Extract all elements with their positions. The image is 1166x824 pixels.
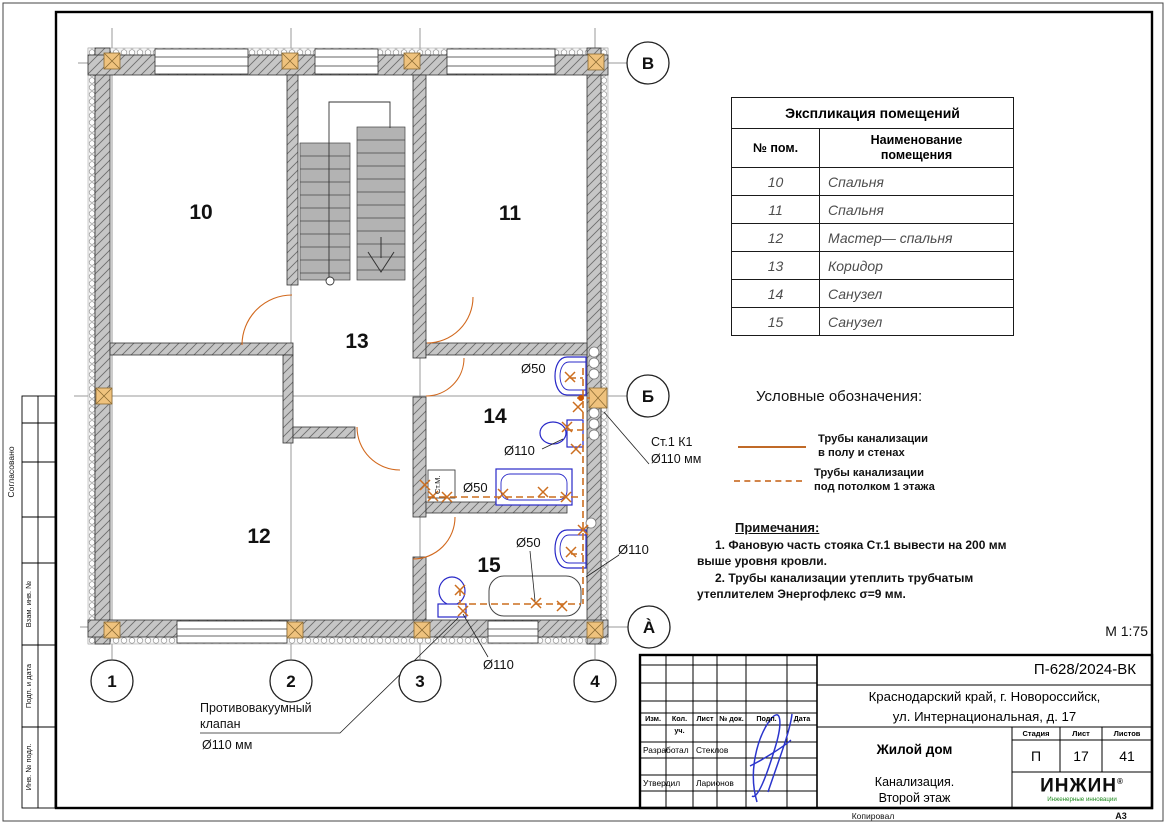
axis-number-1: 1 bbox=[107, 672, 116, 691]
role-approved: Утвердил bbox=[643, 775, 693, 791]
col-kol: Кол. уч. bbox=[666, 713, 693, 725]
table-row: 10Спальня bbox=[732, 168, 1014, 196]
room-number-15: 15 bbox=[477, 554, 501, 577]
left-strip-labels: Согласовано Взам. инв. № Подп. и дата Ин… bbox=[6, 446, 33, 790]
window bbox=[177, 621, 287, 643]
pipe-label-d110: Ø110 bbox=[618, 542, 649, 557]
corner-block bbox=[104, 53, 120, 69]
note-1: 1. Фановую часть стояка Ст.1 вывести на … bbox=[697, 538, 1017, 570]
bathtub-room14 bbox=[496, 469, 572, 505]
room-number-10: 10 bbox=[189, 201, 212, 224]
copied-by-label: Копировал bbox=[852, 811, 895, 821]
door-arc bbox=[413, 517, 455, 559]
solid-pipe-swatch bbox=[738, 446, 806, 448]
sheets-header: Листов bbox=[1102, 727, 1152, 740]
col-podp: Подп. bbox=[746, 713, 787, 725]
stage-value: П bbox=[1012, 741, 1060, 772]
door-arc bbox=[242, 295, 292, 345]
table-row: 11Спальня bbox=[732, 196, 1014, 224]
valve-label-line1: Противовакуумный bbox=[200, 701, 312, 715]
explication-col-num: № пом. bbox=[732, 129, 820, 168]
pipe-label-d110: Ø110 bbox=[483, 657, 514, 672]
company-logo: ИНЖИН® Инженерные инновации bbox=[1012, 772, 1152, 808]
pipe-label-d50: Ø50 bbox=[516, 535, 541, 550]
corner-block bbox=[96, 388, 112, 404]
name-approved: Ларионов bbox=[696, 775, 745, 791]
drawing-title: Канализация. Второй этаж bbox=[817, 773, 1012, 807]
notes: Примечания: 1. Фановую часть стояка Ст.1… bbox=[697, 519, 1017, 603]
sheet-header: Лист bbox=[1060, 727, 1102, 740]
staircase bbox=[300, 102, 405, 285]
table-row: 14Санузел bbox=[732, 280, 1014, 308]
table-row: 13Коридор bbox=[732, 252, 1014, 280]
pipe-label-d50: Ø50 bbox=[521, 361, 546, 376]
stair-start-mark bbox=[326, 277, 334, 285]
note-2: 2. Трубы канализации утеплить трубчатым … bbox=[697, 571, 1017, 603]
window bbox=[155, 49, 248, 74]
project-address: Краснодарский край, г. Новороссийск, ул.… bbox=[817, 686, 1152, 727]
explication-col-name: Наименование помещения bbox=[820, 129, 1014, 168]
corner-block bbox=[404, 53, 420, 69]
window bbox=[488, 621, 538, 643]
role-developed: Разработал bbox=[643, 742, 693, 758]
axis-number-3: 3 bbox=[415, 672, 424, 691]
sheets-total: 41 bbox=[1102, 741, 1152, 772]
valve-label-line3: Ø110 мм bbox=[202, 738, 252, 752]
axis-number-4: 4 bbox=[590, 672, 600, 691]
dashed-pipe-swatch bbox=[734, 480, 802, 482]
legend-item-floor-pipes: Трубы канализации в полу и стенах bbox=[738, 432, 928, 461]
object-name: Жилой дом bbox=[817, 727, 1012, 772]
axis-letter-a: À bbox=[643, 618, 655, 637]
format-label: А3 bbox=[1115, 811, 1127, 821]
corner-block bbox=[282, 53, 298, 69]
door-arc bbox=[427, 297, 473, 343]
riser-label-line2: Ø110 мм bbox=[651, 452, 701, 466]
explication-title: Экспликация помещений bbox=[732, 98, 1014, 129]
room-number-13: 13 bbox=[345, 330, 368, 353]
col-izm: Изм. bbox=[640, 713, 666, 725]
leader-riser bbox=[604, 412, 649, 464]
table-row: 15Санузел bbox=[732, 308, 1014, 336]
explication-table: Экспликация помещений № пом. Наименовани… bbox=[731, 97, 1014, 336]
toilet-room14 bbox=[540, 420, 583, 447]
notes-title: Примечания: bbox=[717, 519, 1017, 536]
riser-block bbox=[589, 388, 607, 408]
podp-label: Подп. и дата bbox=[24, 663, 33, 708]
corner-block bbox=[287, 622, 303, 638]
room-number-14: 14 bbox=[483, 405, 507, 428]
col-ndoc: № док. bbox=[717, 713, 746, 725]
window bbox=[447, 49, 555, 74]
washing-machine-label: Ст.М. bbox=[433, 476, 442, 494]
col-data: Дата bbox=[787, 713, 817, 725]
agreed-label: Согласовано bbox=[6, 446, 16, 497]
legend: Условные обозначения: Трубы канализации … bbox=[734, 386, 1024, 511]
room-number-12: 12 bbox=[247, 525, 270, 548]
table-row: 12Мастер— спальня bbox=[732, 224, 1014, 252]
sink-room15 bbox=[555, 530, 586, 568]
sheet-number: 17 bbox=[1060, 741, 1102, 772]
inv-label: Инв. № подл. bbox=[24, 744, 33, 791]
legend-item-ceiling-pipes: Трубы канализации под потолком 1 этажа bbox=[734, 466, 935, 495]
pipe-label-d50: Ø50 bbox=[463, 480, 488, 495]
bathtub-room15 bbox=[489, 576, 581, 616]
toilet-room15 bbox=[438, 577, 466, 617]
door-arc bbox=[357, 427, 400, 470]
vzam-label: Взам. инв. № bbox=[24, 581, 33, 627]
drawing-sheet: Согласовано Взам. инв. № Подп. и дата Ин… bbox=[0, 0, 1166, 824]
pipe-label-d110: Ø110 bbox=[504, 443, 535, 458]
corner-block bbox=[104, 622, 120, 638]
stage-header: Стадия bbox=[1012, 727, 1060, 740]
riser-label-line1: Ст.1 К1 bbox=[651, 435, 693, 449]
door-arc bbox=[426, 358, 464, 396]
scale-label: М 1:75 bbox=[1105, 623, 1148, 639]
valve-label-line2: клапан bbox=[200, 717, 241, 731]
legend-title: Условные обозначения: bbox=[756, 388, 922, 405]
name-developed: Стеклов bbox=[696, 742, 745, 758]
axis-letter-v: В bbox=[642, 54, 654, 73]
doc-number: П-628/2024-ВК bbox=[817, 656, 1150, 684]
corner-block bbox=[587, 622, 603, 638]
corner-block bbox=[414, 622, 430, 638]
axis-number-2: 2 bbox=[286, 672, 295, 691]
riser-point bbox=[578, 395, 584, 401]
room-number-11: 11 bbox=[499, 202, 522, 225]
axis-letter-b: Б bbox=[642, 387, 654, 406]
corner-block bbox=[588, 54, 604, 70]
window bbox=[315, 49, 378, 74]
col-list: Лист bbox=[693, 713, 717, 725]
